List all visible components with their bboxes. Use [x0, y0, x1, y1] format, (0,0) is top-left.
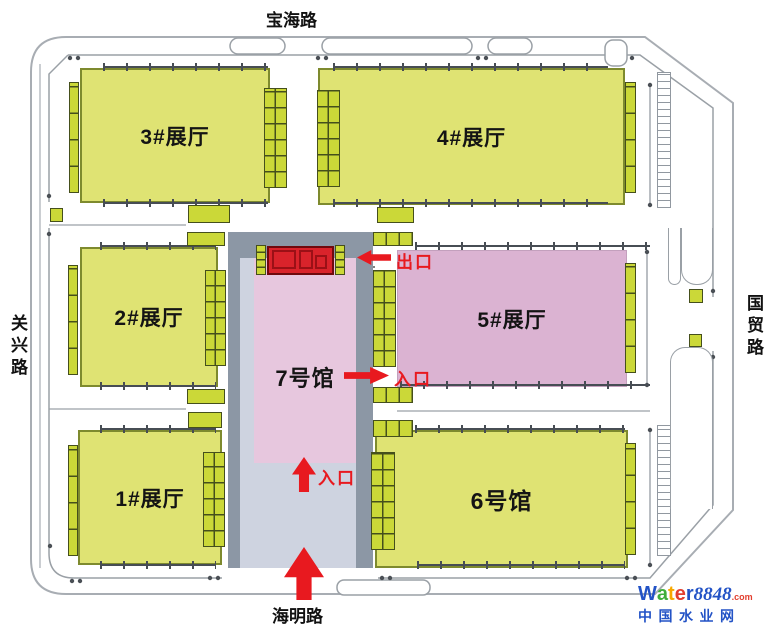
side-strip	[625, 82, 636, 193]
brand-letter: W	[638, 583, 657, 606]
dock-blocks	[205, 270, 226, 366]
watermark-brand: W a t e r 8848 .com	[638, 583, 772, 606]
door-ticks	[100, 561, 216, 569]
road-label-left: 关兴路	[5, 314, 30, 380]
hall-1: 1#展厅	[78, 430, 222, 565]
side-strip	[68, 265, 78, 375]
exit-label: 出口	[396, 248, 434, 273]
dock-blocks	[203, 452, 225, 547]
entrance-label: 入口	[394, 365, 432, 390]
side-gate	[689, 334, 702, 347]
stage-red-body	[267, 246, 334, 275]
door-ticks	[333, 63, 608, 71]
dock-blocks	[373, 270, 396, 367]
road-lane	[668, 228, 681, 285]
door-ticks	[417, 561, 625, 569]
road-label-right: 国贸路	[741, 294, 766, 360]
door-ticks	[415, 425, 625, 433]
side-gate	[50, 208, 63, 222]
stage-side-blocks	[335, 245, 345, 275]
door-ticks	[333, 199, 608, 207]
side-strip	[625, 443, 636, 555]
dock-blocks	[371, 452, 395, 550]
brand-letter: e	[675, 583, 686, 606]
road-label-bottom: 海明路	[272, 602, 323, 627]
road-label-top: 宝海路	[266, 6, 317, 31]
brand-letter: r	[686, 583, 694, 606]
hall-3: 3#展厅	[80, 68, 270, 203]
entrance-label: 入口	[318, 464, 356, 489]
stage-panel	[272, 250, 296, 269]
dock-blocks	[317, 90, 340, 187]
door-ticks	[400, 381, 650, 389]
dock-blocks	[373, 232, 413, 246]
stage-side-blocks	[256, 245, 266, 275]
brand-letter: t	[668, 583, 675, 606]
brand-tld: .com	[732, 592, 753, 602]
hall-3-label: 3#展厅	[140, 121, 209, 151]
hall-7: 7号馆	[254, 258, 356, 463]
hall-4: 4#展厅	[318, 68, 625, 205]
dock-blocks	[264, 88, 287, 188]
hall-6: 6号馆	[375, 430, 628, 568]
expo-site-map: 7号馆 3#展厅 4#展厅 2#展厅 5#展厅 1#展厅 6号馆	[0, 0, 773, 635]
hall-2: 2#展厅	[80, 247, 218, 387]
door-ticks	[103, 199, 268, 207]
parking-ladder	[657, 72, 671, 208]
hall-4-label: 4#展厅	[437, 122, 506, 152]
stage-panel	[315, 255, 327, 269]
hall-5-label: 5#展厅	[477, 304, 546, 334]
stage-structure	[256, 243, 345, 277]
side-strip	[69, 82, 79, 193]
dock-tab	[188, 412, 222, 428]
side-strip	[68, 445, 78, 556]
road-lane	[670, 347, 713, 509]
hall-6-label: 6号馆	[471, 482, 533, 516]
dock-blocks	[373, 420, 413, 437]
dock-tab	[187, 232, 225, 246]
dock-tab	[188, 205, 230, 223]
dock-tab	[187, 389, 225, 404]
door-ticks	[103, 63, 268, 71]
road-lane	[681, 228, 713, 285]
parking-ladder	[657, 425, 671, 556]
brand-number: 8848	[694, 584, 732, 606]
door-ticks	[415, 242, 650, 250]
watermark: W a t e r 8848 .com 中国水业网	[638, 583, 772, 626]
side-strip	[625, 263, 636, 373]
hall-7-label: 7号馆	[275, 361, 334, 393]
stage-panel	[299, 250, 313, 269]
side-gate	[689, 289, 703, 303]
dock-tab	[377, 207, 414, 223]
watermark-site-name: 中国水业网	[638, 606, 772, 626]
hall-1-label: 1#展厅	[115, 483, 184, 513]
hall-2-label: 2#展厅	[114, 302, 183, 332]
brand-letter: a	[657, 583, 668, 606]
